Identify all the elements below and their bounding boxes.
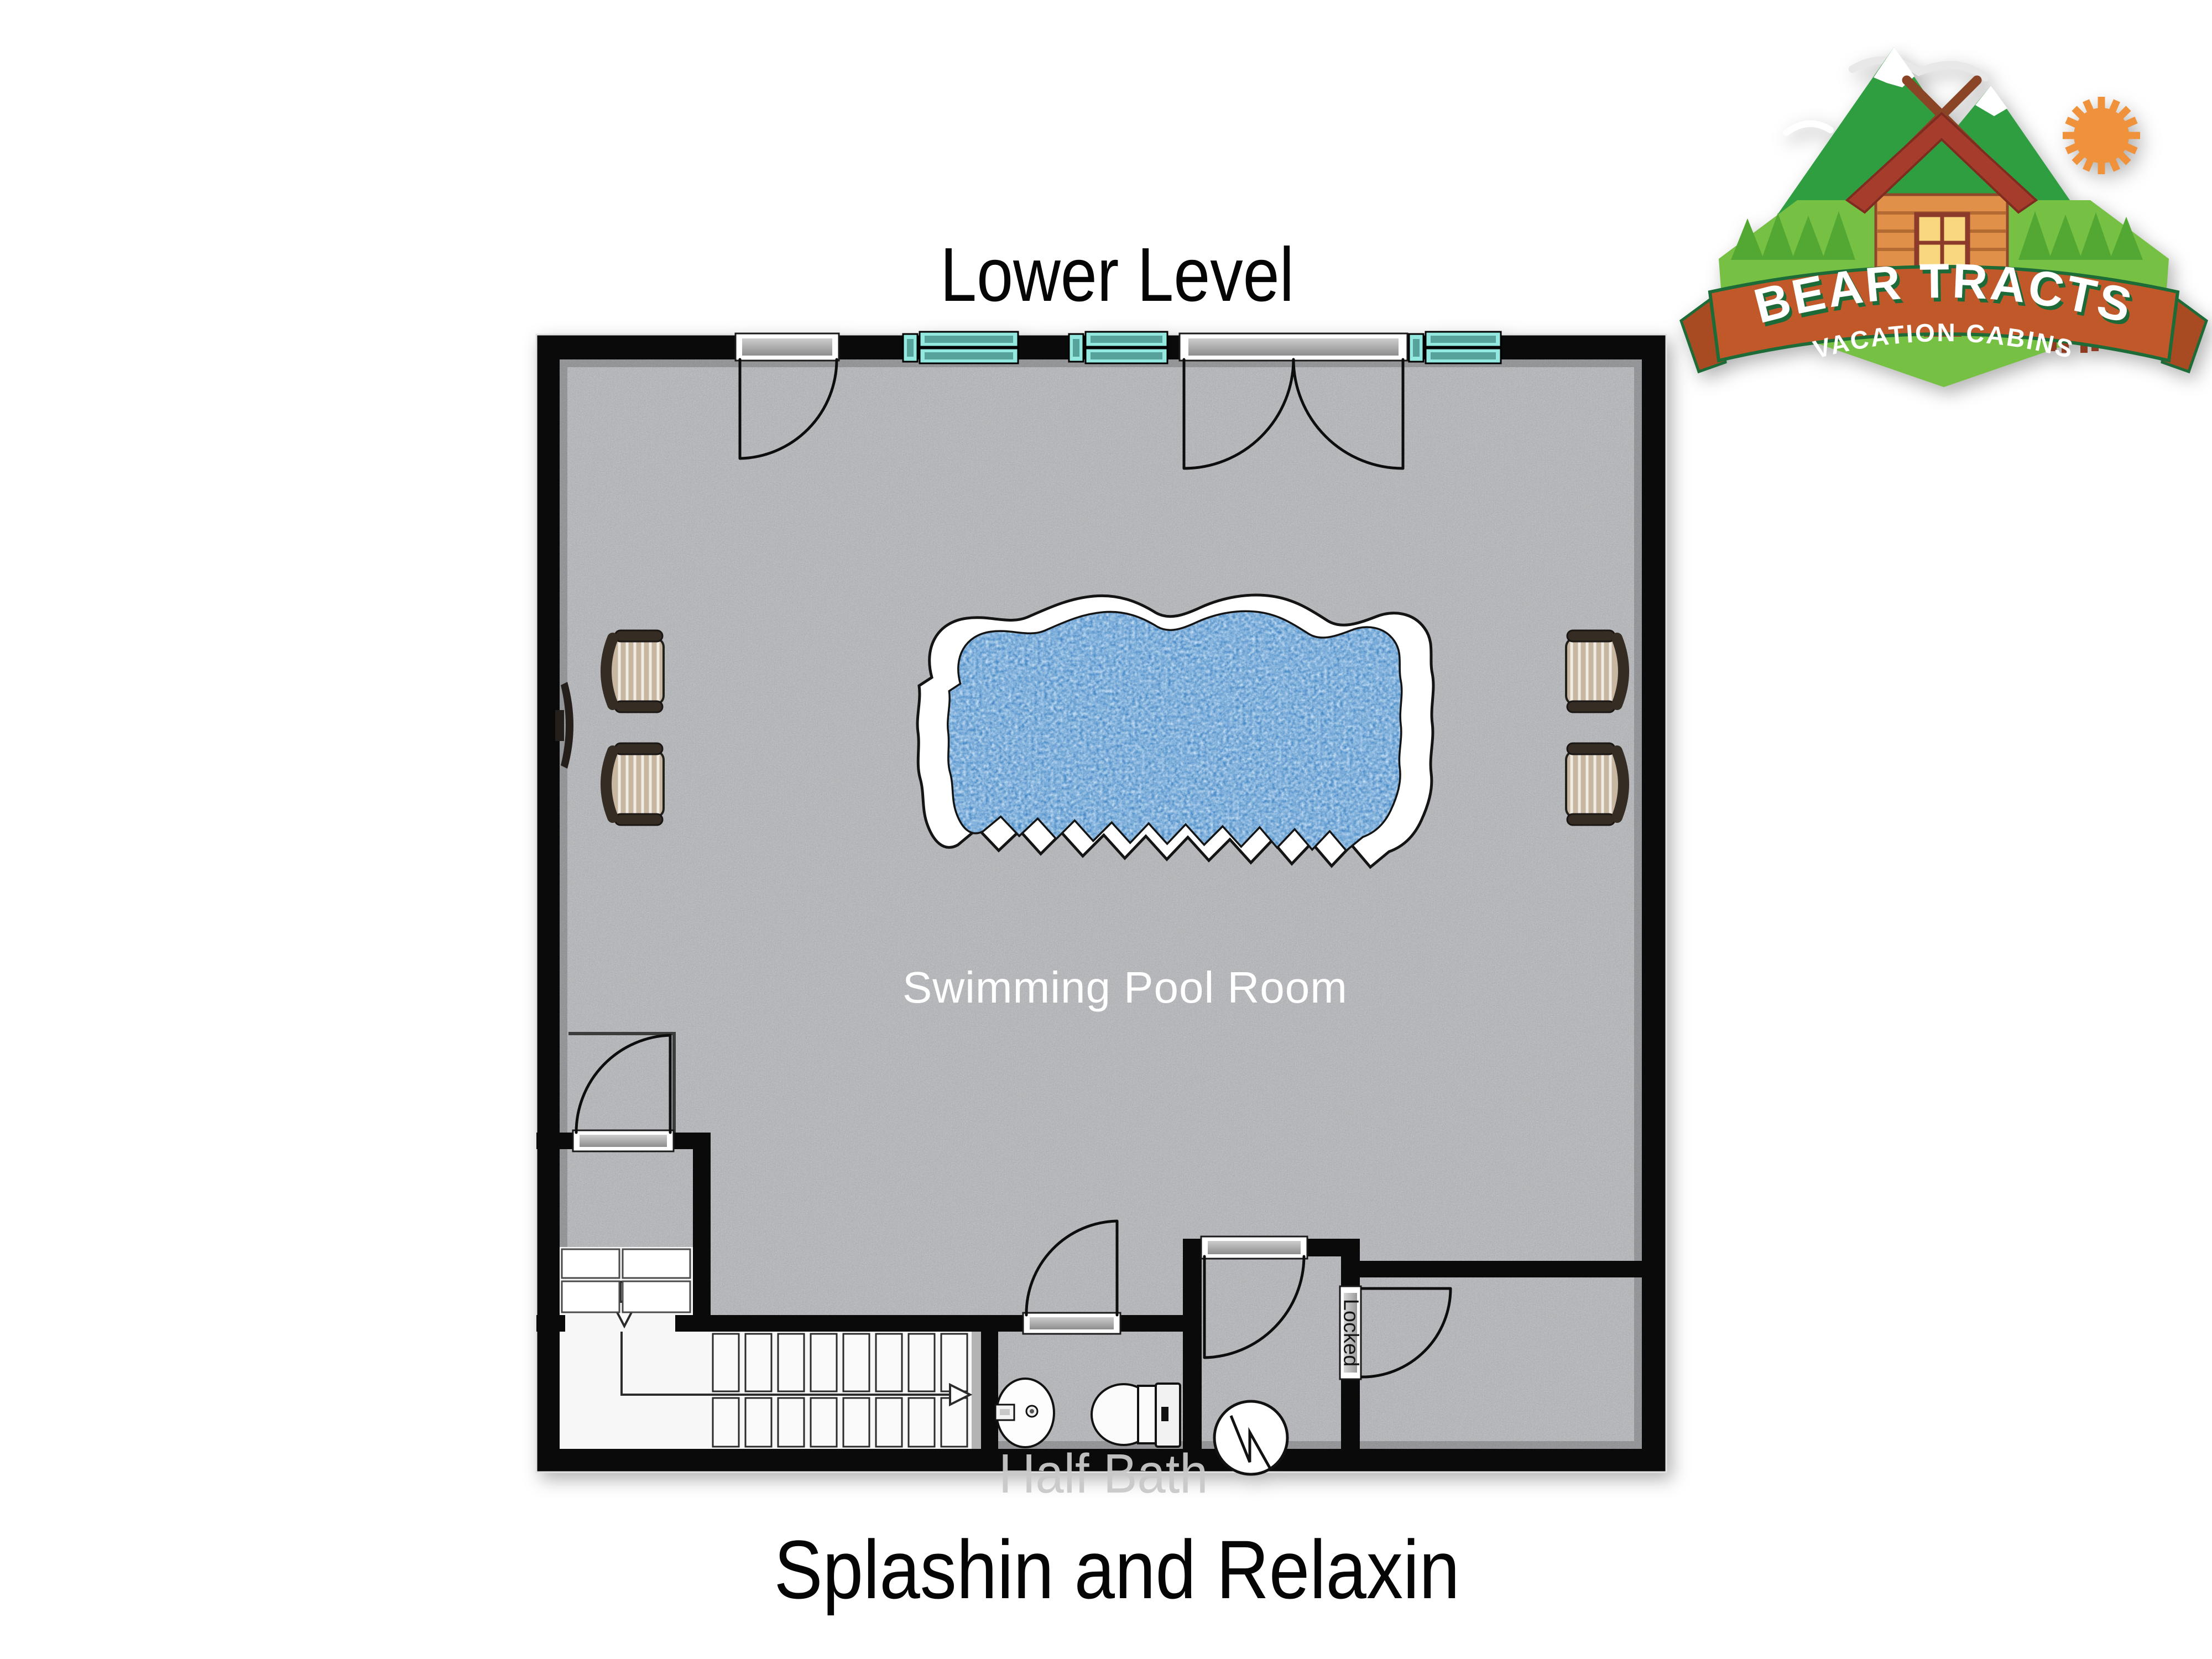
- floor-plan: [536, 332, 1666, 1474]
- cabin-name-caption: Splashin and Relaxin: [686, 1522, 1548, 1618]
- concrete-floor: [560, 359, 1642, 1449]
- closet-shelves: [562, 1249, 690, 1312]
- toilet-icon: [1092, 1384, 1180, 1447]
- sun-icon: [2063, 97, 2140, 174]
- room-label-swimming-pool: Swimming Pool Room: [902, 962, 1348, 1013]
- stair-stringer: [972, 1332, 981, 1449]
- half-bath-text: Half Bath: [999, 1442, 1208, 1506]
- page: BEAR TRACTS VACATION CABINS Lower Level …: [0, 0, 2212, 1659]
- lounge-chair-icon: [606, 743, 664, 825]
- lounge-chair-icon: [1566, 630, 1624, 712]
- room-label-half-bath: Half Bath: [999, 1442, 1226, 1506]
- door-label-locked: Locked: [1339, 1299, 1363, 1367]
- logo: BEAR TRACTS VACATION CABINS: [1681, 47, 2206, 387]
- page-title: Lower Level: [841, 231, 1394, 319]
- sink-icon: [995, 1379, 1054, 1447]
- window-icon: [903, 332, 1018, 363]
- window-icon: [1409, 332, 1501, 363]
- window-icon: [1069, 332, 1167, 363]
- cabin-name-text: Splashin and Relaxin: [774, 1522, 1460, 1618]
- page-title-text: Lower Level: [940, 231, 1294, 319]
- lounge-chair-icon: [606, 630, 664, 712]
- swimming-pool: [907, 586, 1438, 879]
- lounge-chair-icon: [1566, 743, 1624, 825]
